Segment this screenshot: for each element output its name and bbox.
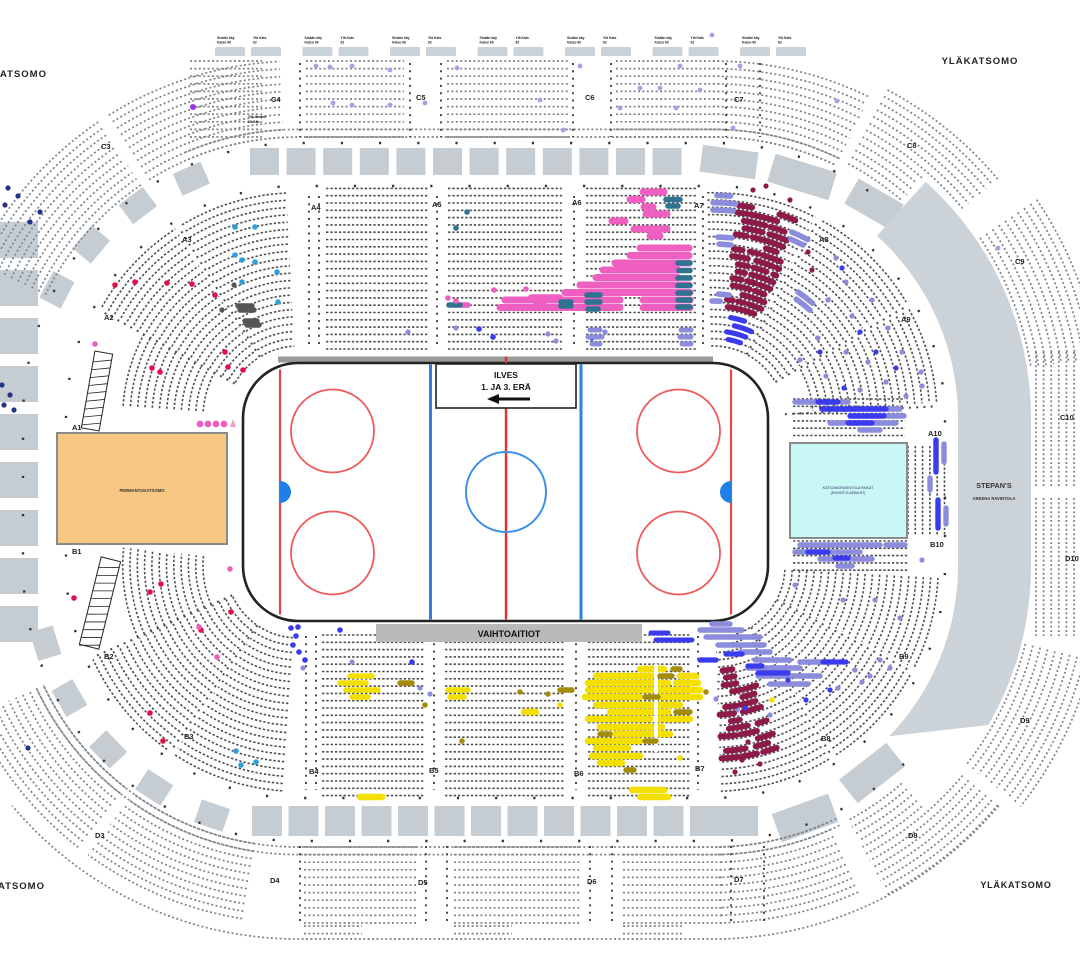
svg-text:Ylä Kats: Ylä Kats <box>428 36 441 40</box>
svg-text:A2: A2 <box>104 313 114 322</box>
svg-text:Katso 60: Katso 60 <box>392 41 406 45</box>
svg-text:Sisään käy: Sisään käy <box>392 36 410 40</box>
svg-text:D10: D10 <box>1065 554 1079 563</box>
svg-text:A8: A8 <box>819 235 829 244</box>
svg-text:C10: C10 <box>1060 413 1074 422</box>
svg-text:B10: B10 <box>930 540 944 549</box>
svg-text:(RAVINTOLAPAIKAT): (RAVINTOLAPAIKAT) <box>831 491 866 495</box>
svg-text:62: 62 <box>691 41 695 45</box>
svg-text:Sisään käy: Sisään käy <box>305 36 323 40</box>
svg-text:YLÄKATSOMO: YLÄKATSOMO <box>0 881 45 892</box>
svg-text:62: 62 <box>341 41 345 45</box>
svg-text:VAIHTOAITIOT: VAIHTOAITIOT <box>478 629 541 639</box>
svg-text:Katso 60: Katso 60 <box>480 41 494 45</box>
svg-text:C7: C7 <box>734 95 744 104</box>
svg-text:B2: B2 <box>104 652 114 661</box>
svg-text:Ylä Kats: Ylä Kats <box>341 36 354 40</box>
svg-text:B3: B3 <box>184 732 194 741</box>
svg-text:D6: D6 <box>587 877 597 886</box>
svg-text:A7: A7 <box>694 201 704 210</box>
svg-text:60-64b: 60-64b <box>248 120 260 124</box>
svg-text:Katso 60: Katso 60 <box>742 41 756 45</box>
svg-text:D5: D5 <box>418 878 428 887</box>
svg-text:D9: D9 <box>1020 716 1030 725</box>
svg-text:Ylä Kats: Ylä Kats <box>253 36 266 40</box>
svg-text:Sisään käy: Sisään käy <box>742 36 760 40</box>
svg-text:PERMANTOKATSOMO: PERMANTOKATSOMO <box>120 488 166 493</box>
svg-text:62: 62 <box>778 41 782 45</box>
svg-text:Ylä-lämpiö: Ylä-lämpiö <box>248 115 267 119</box>
svg-text:A3: A3 <box>182 235 192 244</box>
svg-text:62: 62 <box>603 41 607 45</box>
svg-text:B4: B4 <box>309 767 319 776</box>
svg-text:D7: D7 <box>734 875 744 884</box>
svg-text:1. JA 3. ERÄ: 1. JA 3. ERÄ <box>481 382 531 392</box>
svg-text:KATSOMORAVINTOLA PAIKAT: KATSOMORAVINTOLA PAIKAT <box>823 486 875 490</box>
svg-text:C6: C6 <box>585 93 595 102</box>
svg-text:A9: A9 <box>901 315 911 324</box>
svg-text:YLÄKATSOMO: YLÄKATSOMO <box>980 880 1051 890</box>
svg-text:Sisään käy: Sisään käy <box>567 36 585 40</box>
svg-text:YLÄKATSOMO: YLÄKATSOMO <box>942 56 1019 67</box>
svg-text:AREENA RAVINTOLA: AREENA RAVINTOLA <box>973 496 1016 501</box>
svg-text:C9: C9 <box>1015 257 1025 266</box>
svg-text:Katso 60: Katso 60 <box>305 41 319 45</box>
svg-text:D4: D4 <box>270 876 280 885</box>
svg-text:ILVES: ILVES <box>494 370 518 380</box>
svg-text:C3: C3 <box>101 142 111 151</box>
svg-text:B5: B5 <box>429 766 439 775</box>
svg-text:Katso 60: Katso 60 <box>217 41 231 45</box>
svg-text:B7: B7 <box>695 764 705 773</box>
svg-text:Ylä Kats: Ylä Kats <box>691 36 704 40</box>
svg-text:STEPAN’S: STEPAN’S <box>976 481 1012 490</box>
svg-text:D8: D8 <box>908 831 918 840</box>
svg-text:C8: C8 <box>907 141 917 150</box>
svg-text:62: 62 <box>253 41 257 45</box>
svg-text:C5: C5 <box>416 93 426 102</box>
svg-text:A5: A5 <box>432 200 442 209</box>
svg-text:Sisään käy: Sisään käy <box>480 36 498 40</box>
svg-text:Sisään käy: Sisään käy <box>217 36 235 40</box>
svg-text:62: 62 <box>516 41 520 45</box>
svg-text:B6: B6 <box>574 769 584 778</box>
svg-text:A10: A10 <box>928 429 942 438</box>
svg-text:B9: B9 <box>899 652 909 661</box>
svg-text:B1: B1 <box>72 547 82 556</box>
svg-text:62: 62 <box>428 41 432 45</box>
svg-text:Ylä Kats: Ylä Kats <box>603 36 616 40</box>
svg-text:Ylä Kats: Ylä Kats <box>778 36 791 40</box>
svg-text:C4: C4 <box>271 95 281 104</box>
svg-text:A1: A1 <box>72 423 82 432</box>
svg-text:A4: A4 <box>311 203 321 212</box>
svg-text:A6: A6 <box>572 198 582 207</box>
svg-text:B8: B8 <box>821 734 831 743</box>
svg-text:Sisään käy: Sisään käy <box>655 36 673 40</box>
svg-text:Katso 60: Katso 60 <box>567 41 581 45</box>
svg-text:YLÄKATSOMO: YLÄKATSOMO <box>0 69 47 80</box>
svg-text:D3: D3 <box>95 831 105 840</box>
svg-text:Katso 60: Katso 60 <box>655 41 669 45</box>
svg-text:Ylä Kats: Ylä Kats <box>516 36 529 40</box>
